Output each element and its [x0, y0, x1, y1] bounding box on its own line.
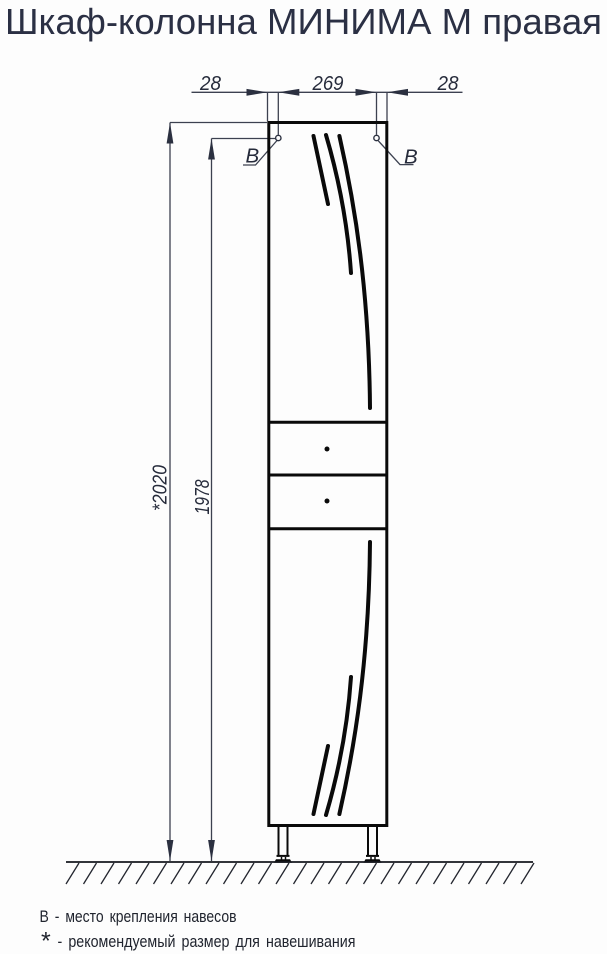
svg-text:В: В — [404, 146, 418, 169]
svg-text:*2020: *2020 — [149, 464, 172, 511]
svg-text:В - место крепления навесов: В - место крепления навесов — [40, 907, 237, 926]
svg-text:*: * — [41, 928, 51, 954]
svg-text:Шкаф-колонна МИНИМА М правая: Шкаф-колонна МИНИМА М правая — [5, 1, 602, 42]
svg-text:269: 269 — [312, 72, 344, 95]
svg-text:28: 28 — [437, 72, 459, 95]
svg-text:- рекомендуемый размер для нав: - рекомендуемый размер для навешивания — [58, 932, 356, 951]
svg-text:28: 28 — [199, 72, 221, 95]
svg-text:В: В — [246, 145, 260, 168]
svg-text:1978: 1978 — [191, 479, 214, 514]
